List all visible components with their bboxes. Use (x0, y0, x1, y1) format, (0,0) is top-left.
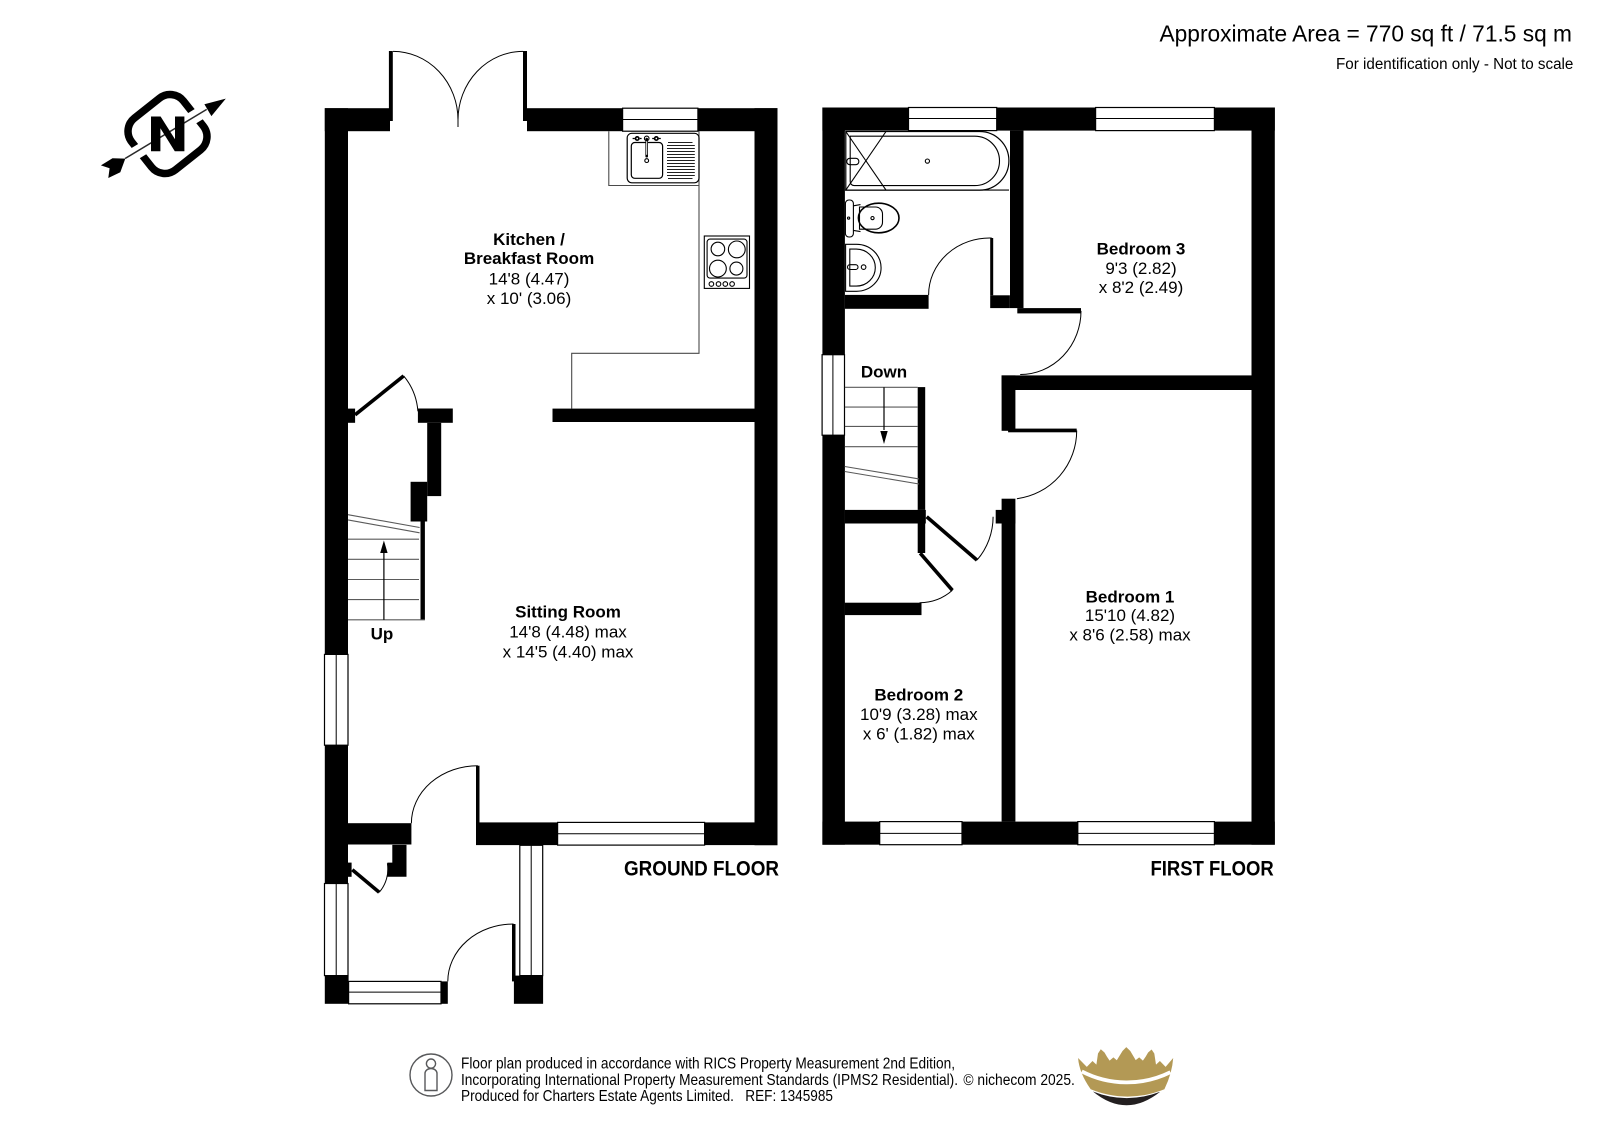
svg-text:FIRST FLOOR: FIRST FLOOR (1151, 857, 1275, 881)
svg-text:Sitting Room14'8 (4.48) maxx 1: Sitting Room14'8 (4.48) maxx 14'5 (4.40)… (503, 603, 634, 662)
svg-text:Bedroom 39'3 (2.82)x 8'2 (2.49: Bedroom 39'3 (2.82)x 8'2 (2.49) (1097, 239, 1186, 297)
svg-text:Floor plan produced in accorda: Floor plan produced in accordance with R… (461, 1056, 955, 1073)
svg-text:Bedroom 115'10 (4.82)x 8'6 (2.: Bedroom 115'10 (4.82)x 8'6 (2.58) max (1069, 587, 1191, 644)
svg-text:Produced for Charters Estate A: Produced for Charters Estate Agents Limi… (461, 1088, 833, 1105)
svg-text:© nichecom 2025.: © nichecom 2025. (963, 1072, 1075, 1089)
svg-text:Up: Up (371, 624, 394, 643)
svg-text:Incorporating International Pr: Incorporating International Property Mea… (461, 1072, 958, 1089)
svg-text:For identification only - Not: For identification only - Not to scale (1336, 56, 1573, 73)
svg-text:GROUND FLOOR: GROUND FLOOR (624, 857, 779, 881)
svg-text:Bedroom 210'9 (3.28) maxx 6' (: Bedroom 210'9 (3.28) maxx 6' (1.82) max (860, 685, 978, 743)
svg-text:Approximate Area = 770 sq ft /: Approximate Area = 770 sq ft / 71.5 sq m (1160, 20, 1573, 46)
svg-text:Down: Down (861, 362, 907, 381)
